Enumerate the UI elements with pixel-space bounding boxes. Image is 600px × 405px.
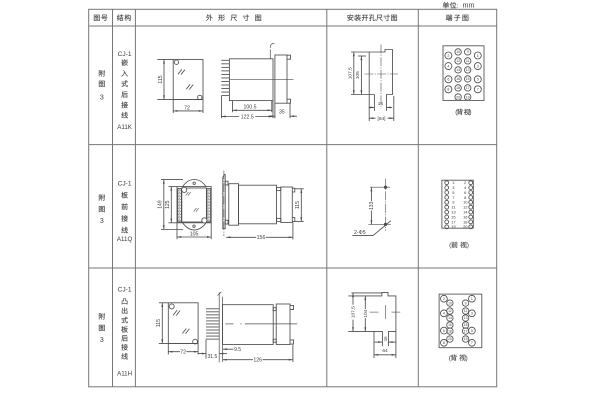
svg-text:115: 115 — [158, 75, 164, 83]
svg-text:100.5: 100.5 — [244, 105, 257, 111]
svg-text:5: 5 — [471, 329, 473, 333]
svg-text:A11Q: A11Q — [117, 236, 133, 243]
svg-text:13: 13 — [464, 316, 468, 320]
svg-text:115: 115 — [295, 201, 301, 209]
svg-text:11: 11 — [466, 59, 470, 63]
svg-text::: : — [456, 3, 458, 10]
svg-text:4: 4 — [443, 312, 445, 316]
svg-text:5: 5 — [477, 78, 479, 82]
svg-text:2: 2 — [447, 54, 449, 58]
svg-text:1: 1 — [477, 54, 479, 58]
svg-text:16: 16 — [456, 77, 460, 81]
svg-text:104: 104 — [363, 309, 369, 317]
svg-text:): ) — [469, 109, 471, 116]
svg-text:13: 13 — [466, 68, 470, 72]
svg-text:3: 3 — [100, 95, 104, 102]
svg-text:107.5: 107.5 — [348, 67, 354, 79]
svg-text:115: 115 — [156, 319, 162, 327]
svg-text:149: 149 — [158, 200, 164, 209]
svg-text:CJ-1: CJ-1 — [118, 180, 132, 187]
svg-text:20: 20 — [463, 224, 468, 229]
svg-text:): ) — [467, 242, 469, 249]
svg-text:72: 72 — [180, 350, 186, 356]
svg-text:15: 15 — [466, 77, 470, 81]
svg-text:16: 16 — [448, 323, 452, 327]
svg-text:11: 11 — [464, 309, 468, 313]
svg-text:9: 9 — [465, 301, 467, 305]
svg-text:12: 12 — [456, 59, 460, 63]
svg-text:105: 105 — [190, 231, 199, 237]
svg-text:16: 16 — [378, 101, 384, 107]
svg-text:133: 133 — [369, 201, 375, 210]
svg-text:16: 16 — [383, 336, 388, 341]
svg-text:[64]: [64] — [377, 116, 385, 122]
svg-text:10: 10 — [448, 301, 452, 305]
svg-text:3: 3 — [477, 64, 479, 68]
svg-text:20: 20 — [456, 95, 460, 99]
svg-text:6: 6 — [447, 78, 449, 82]
svg-text:9.5: 9.5 — [234, 347, 241, 353]
svg-text:107.5: 107.5 — [351, 306, 357, 318]
svg-text:1: 1 — [471, 297, 473, 301]
svg-text:15: 15 — [464, 323, 468, 327]
svg-text:6: 6 — [443, 329, 445, 333]
svg-text:125: 125 — [165, 200, 171, 209]
svg-text:35: 35 — [279, 109, 285, 115]
svg-text:19: 19 — [464, 337, 468, 341]
svg-text:9: 9 — [467, 50, 469, 54]
svg-text:3: 3 — [471, 312, 473, 316]
svg-text:18: 18 — [448, 329, 452, 333]
svg-text:CJ-1: CJ-1 — [118, 287, 132, 294]
svg-text:19: 19 — [466, 95, 470, 99]
svg-text:7: 7 — [477, 88, 479, 92]
svg-text:A11K: A11K — [117, 124, 133, 131]
svg-text:17: 17 — [466, 86, 470, 90]
svg-text:156: 156 — [257, 235, 266, 241]
svg-text:18: 18 — [456, 86, 460, 90]
svg-text:14: 14 — [448, 316, 452, 320]
svg-text:105: 105 — [355, 71, 361, 79]
svg-text:20: 20 — [448, 337, 452, 341]
svg-text:17: 17 — [464, 329, 468, 333]
svg-text:mm: mm — [463, 2, 475, 9]
svg-text:A11H: A11H — [117, 370, 132, 377]
svg-text:122.5: 122.5 — [241, 114, 254, 120]
svg-text:2-Φ5: 2-Φ5 — [354, 230, 366, 236]
svg-text:8: 8 — [443, 341, 445, 345]
svg-text:7: 7 — [471, 341, 473, 345]
svg-text:12: 12 — [448, 309, 452, 313]
svg-text:2: 2 — [443, 297, 445, 301]
svg-text:19: 19 — [451, 224, 456, 229]
svg-text:4: 4 — [447, 64, 449, 68]
svg-text:3: 3 — [100, 337, 104, 344]
svg-text:CJ-1: CJ-1 — [118, 51, 132, 58]
svg-text:8: 8 — [447, 88, 449, 92]
svg-text:): ) — [465, 355, 467, 362]
svg-text:64: 64 — [382, 348, 388, 354]
svg-text:10: 10 — [456, 50, 460, 54]
svg-text:72: 72 — [184, 105, 190, 111]
svg-text:14: 14 — [456, 68, 460, 72]
svg-text:3: 3 — [100, 218, 104, 225]
svg-text:126: 126 — [253, 358, 262, 364]
svg-text:31.5: 31.5 — [208, 354, 218, 360]
